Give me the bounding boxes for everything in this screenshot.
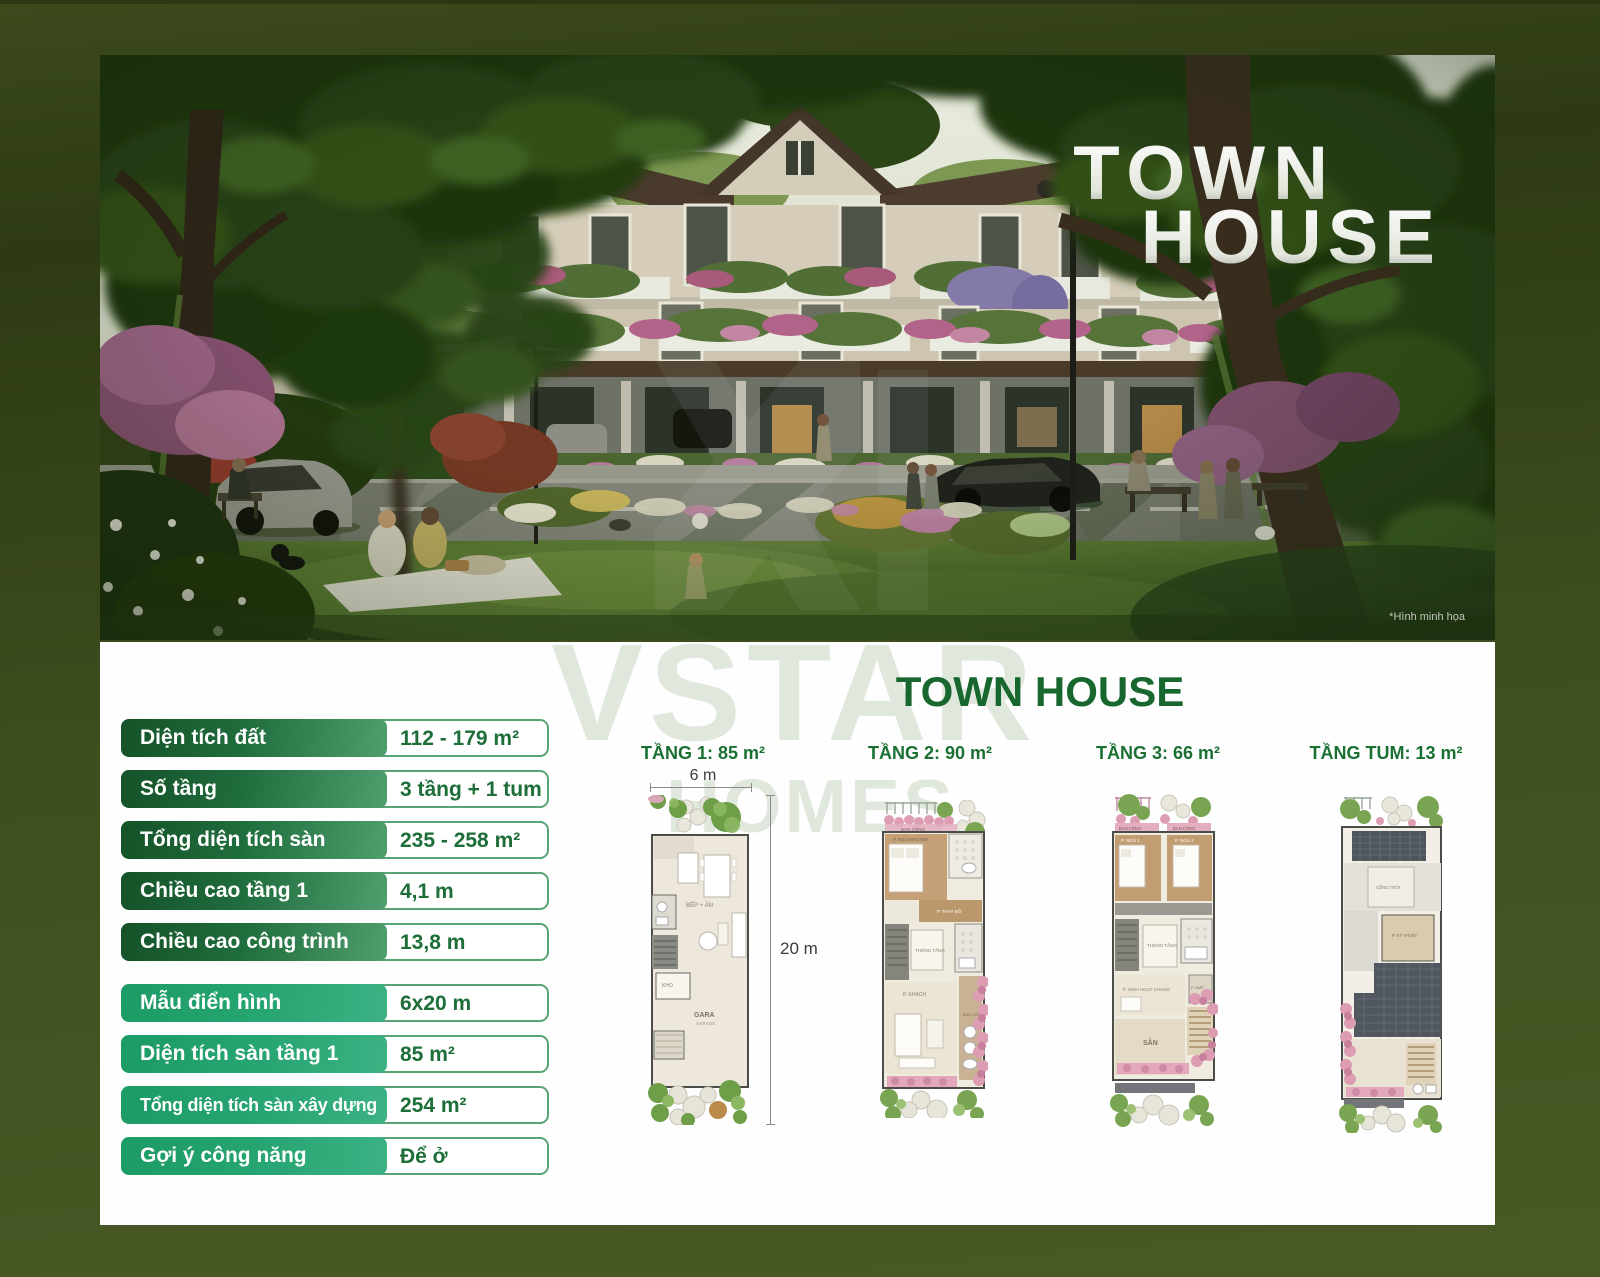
svg-text:GARAGE: GARAGE <box>696 1021 715 1026</box>
svg-text:CỔNG TRỜI: CỔNG TRỜI <box>1376 885 1400 890</box>
svg-text:THÔNG TẦNG: THÔNG TẦNG <box>915 947 945 953</box>
svg-text:P. NGỦ MASTER: P. NGỦ MASTER <box>893 836 929 842</box>
svg-text:P. NGỦ 2: P. NGỦ 2 <box>1175 837 1194 843</box>
svg-text:P. KỸ THUẬT: P. KỸ THUẬT <box>1392 933 1418 938</box>
svg-text:P. GIẶT: P. GIẶT <box>1191 986 1205 990</box>
svg-text:P. THAY ĐỒ: P. THAY ĐỒ <box>937 908 962 914</box>
svg-text:BAN CÔNG: BAN CÔNG <box>1173 826 1195 831</box>
svg-text:THÔNG TẦNG: THÔNG TẦNG <box>1147 942 1177 948</box>
svg-text:P. SINH HOẠT CHUNG: P. SINH HOẠT CHUNG <box>1123 987 1171 992</box>
svg-text:SÂN: SÂN <box>1143 1038 1158 1047</box>
svg-text:*Hình minh họa: *Hình minh họa <box>1389 611 1466 623</box>
svg-text:BAN CÔNG: BAN CÔNG <box>1119 826 1141 831</box>
svg-text:P. KHÁCH: P. KHÁCH <box>903 991 926 998</box>
svg-text:P. NGỦ 1: P. NGỦ 1 <box>1121 837 1140 843</box>
svg-text:HOUSE: HOUSE <box>1141 195 1441 280</box>
svg-text:GARA: GARA <box>694 1012 715 1019</box>
svg-text:KHO: KHO <box>662 983 673 989</box>
svg-text:BẾP + ĂN: BẾP + ĂN <box>686 902 713 909</box>
